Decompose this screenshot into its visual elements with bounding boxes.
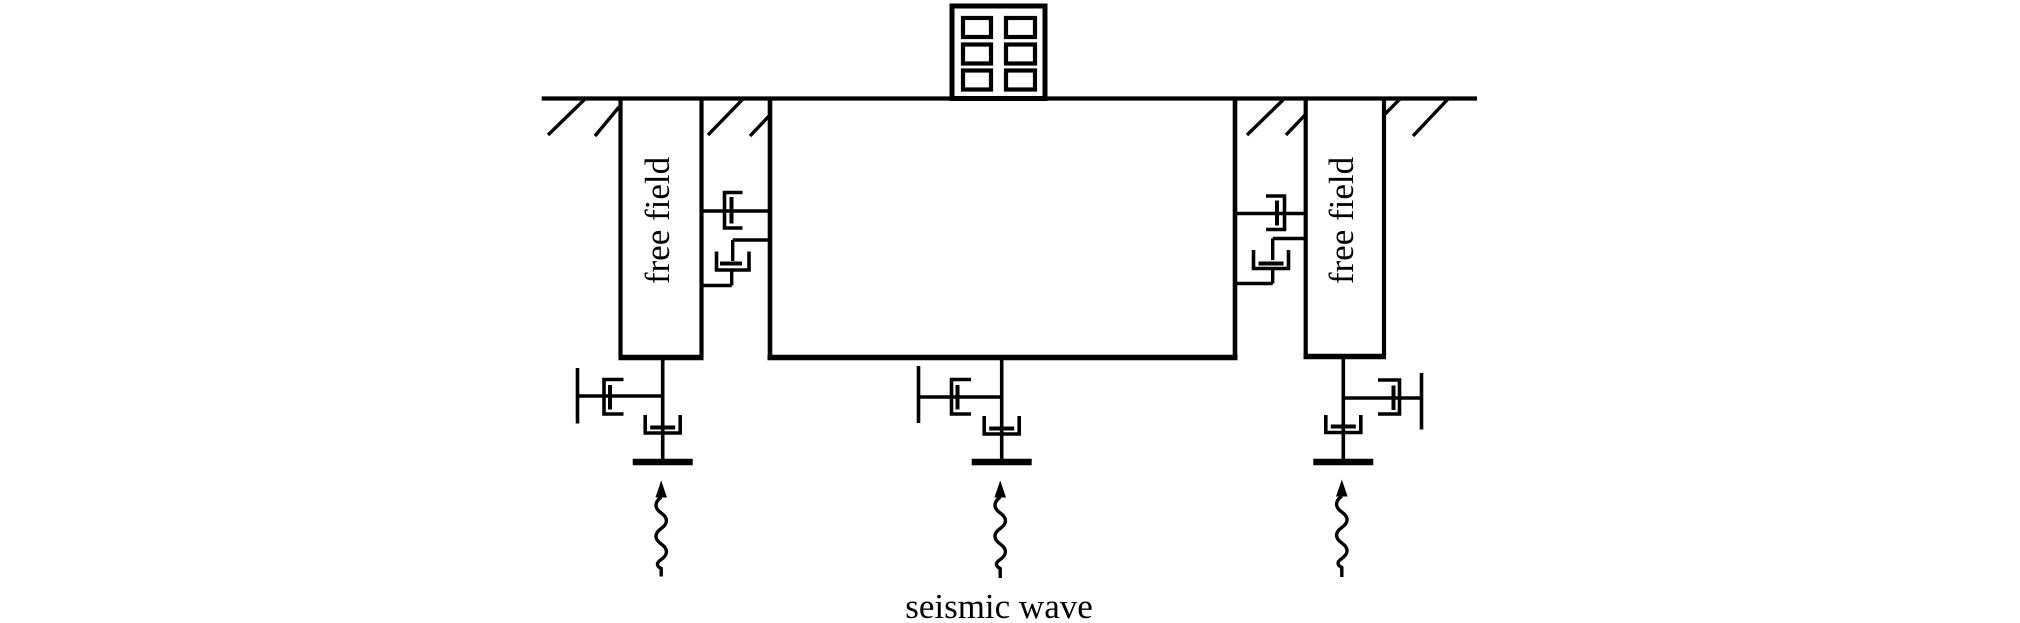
interface-dashpot-left-horizontal bbox=[702, 193, 771, 229]
seismic-wave-label: seismic wave bbox=[905, 587, 1093, 623]
interface-dashpot-right-horizontal bbox=[1235, 196, 1306, 230]
ground-surface bbox=[542, 98, 1477, 136]
interface-dashpot-right-vertical bbox=[1235, 239, 1306, 284]
window bbox=[963, 18, 991, 37]
window bbox=[963, 45, 991, 64]
window bbox=[1006, 45, 1035, 64]
hatch-mark bbox=[750, 115, 770, 136]
figure: free field free field bbox=[0, 0, 2020, 623]
window bbox=[1006, 18, 1035, 37]
arrow-head-icon bbox=[994, 481, 1006, 498]
hatch-mark bbox=[548, 99, 585, 135]
seismic-wave-arrow-left bbox=[655, 481, 667, 577]
arrow-head-icon bbox=[1336, 480, 1348, 497]
free-field-label-left: free field bbox=[638, 156, 677, 284]
diagram-canvas: free field free field bbox=[0, 0, 2020, 623]
window bbox=[963, 71, 991, 90]
building bbox=[952, 6, 1045, 99]
interface-dashpot-left-vertical bbox=[702, 240, 771, 286]
hatch-mark bbox=[1413, 99, 1448, 136]
free-field-column-right: free field bbox=[1304, 99, 1387, 357]
arrow-head-icon bbox=[655, 481, 667, 498]
wavy-line bbox=[1337, 496, 1348, 577]
wavy-line bbox=[995, 497, 1006, 578]
seismic-wave-arrow-center bbox=[994, 481, 1006, 579]
base-support-center bbox=[919, 358, 1032, 463]
base-support-right bbox=[1313, 357, 1421, 463]
free-field-label-right: free field bbox=[1322, 156, 1361, 284]
seismic-wave-arrow-right bbox=[1336, 480, 1348, 578]
hatch-mark bbox=[595, 107, 619, 136]
free-field-column-left: free field bbox=[619, 99, 704, 358]
wavy-line bbox=[656, 497, 667, 577]
hatch-mark bbox=[1286, 115, 1305, 135]
hatch-mark bbox=[708, 99, 743, 135]
hatch-mark bbox=[1247, 100, 1283, 135]
window bbox=[1006, 71, 1035, 90]
base-support-left bbox=[578, 358, 693, 463]
soil-block bbox=[768, 99, 1238, 358]
ground-hatches bbox=[548, 98, 1448, 136]
